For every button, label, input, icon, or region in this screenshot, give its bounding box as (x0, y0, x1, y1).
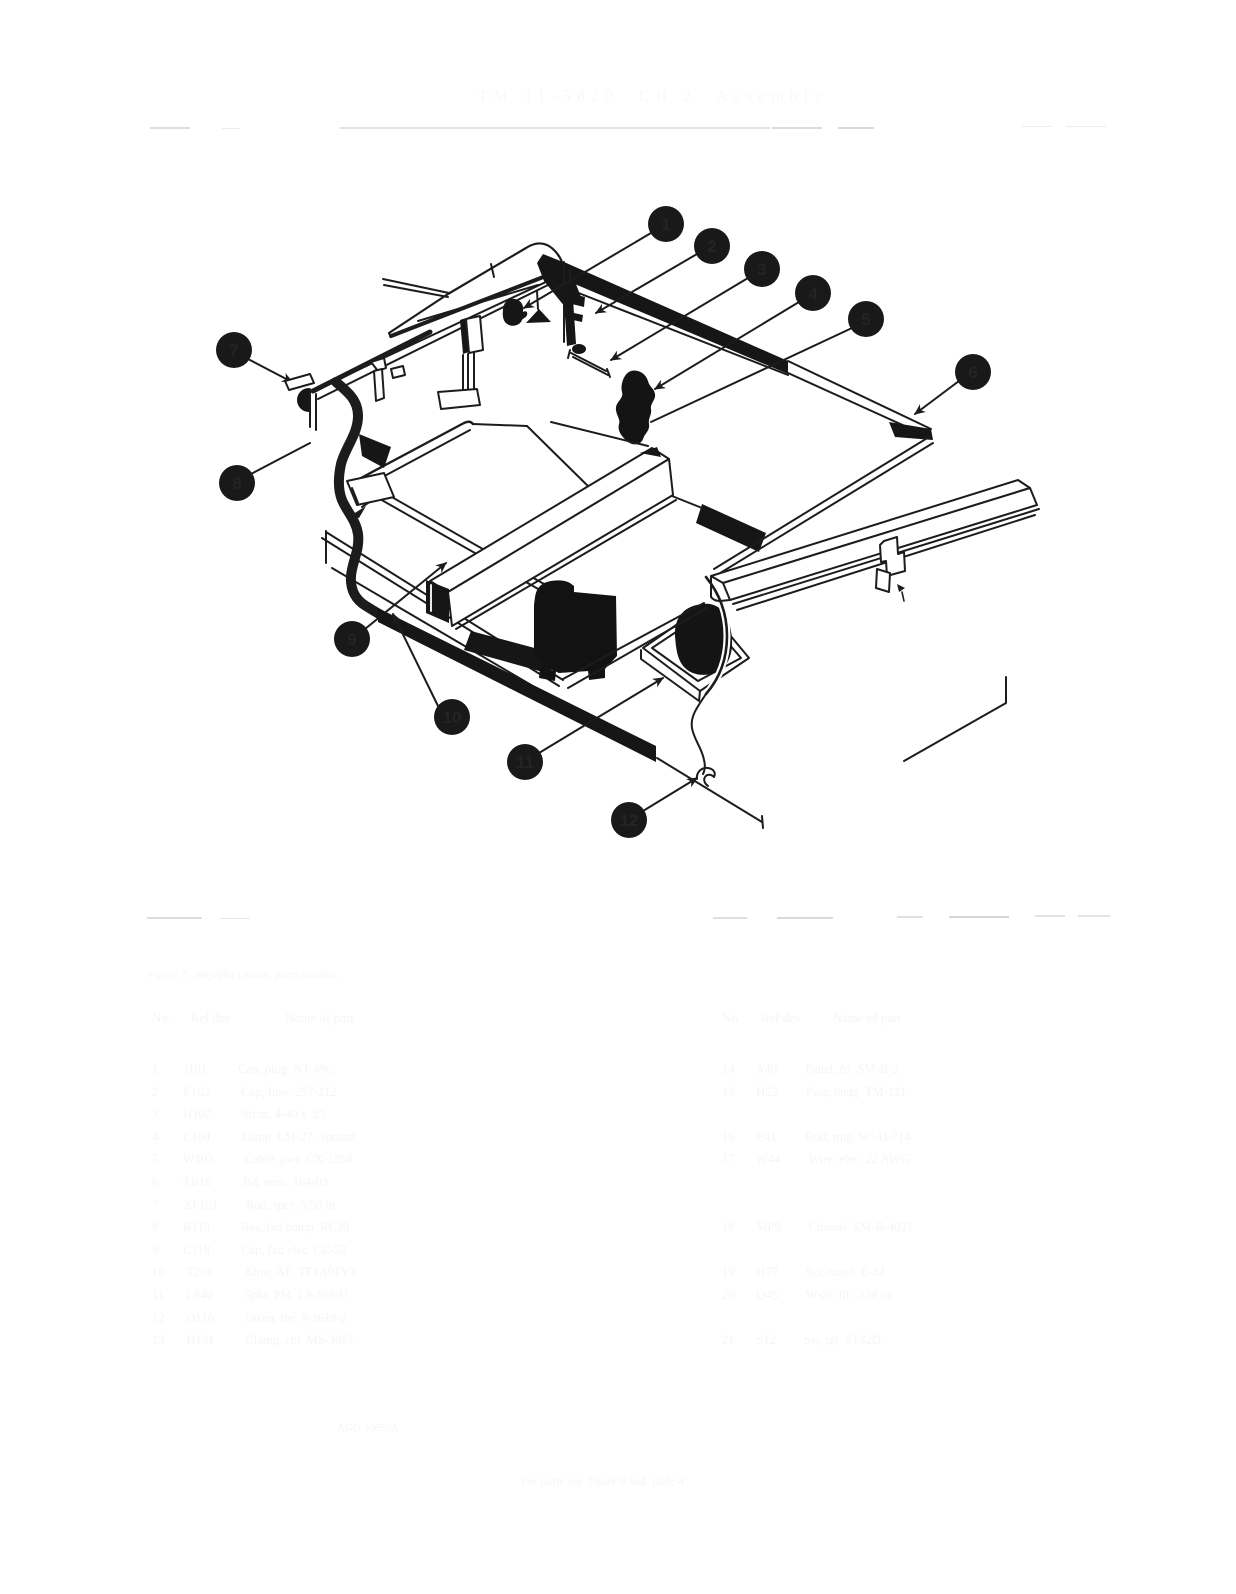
svg-text:6: 6 (968, 363, 977, 382)
svg-text:9: 9 (347, 630, 356, 649)
svg-text:11: 11 (516, 753, 534, 772)
svg-text:4: 4 (808, 284, 818, 303)
svg-text:7: 7 (229, 341, 238, 360)
svg-text:2: 2 (707, 237, 716, 256)
svg-text:8: 8 (232, 474, 241, 493)
svg-text:5: 5 (861, 310, 870, 329)
svg-text:12: 12 (620, 811, 639, 830)
svg-text:10: 10 (443, 708, 462, 727)
svg-text:3: 3 (757, 260, 766, 279)
svg-text:1: 1 (661, 215, 670, 234)
